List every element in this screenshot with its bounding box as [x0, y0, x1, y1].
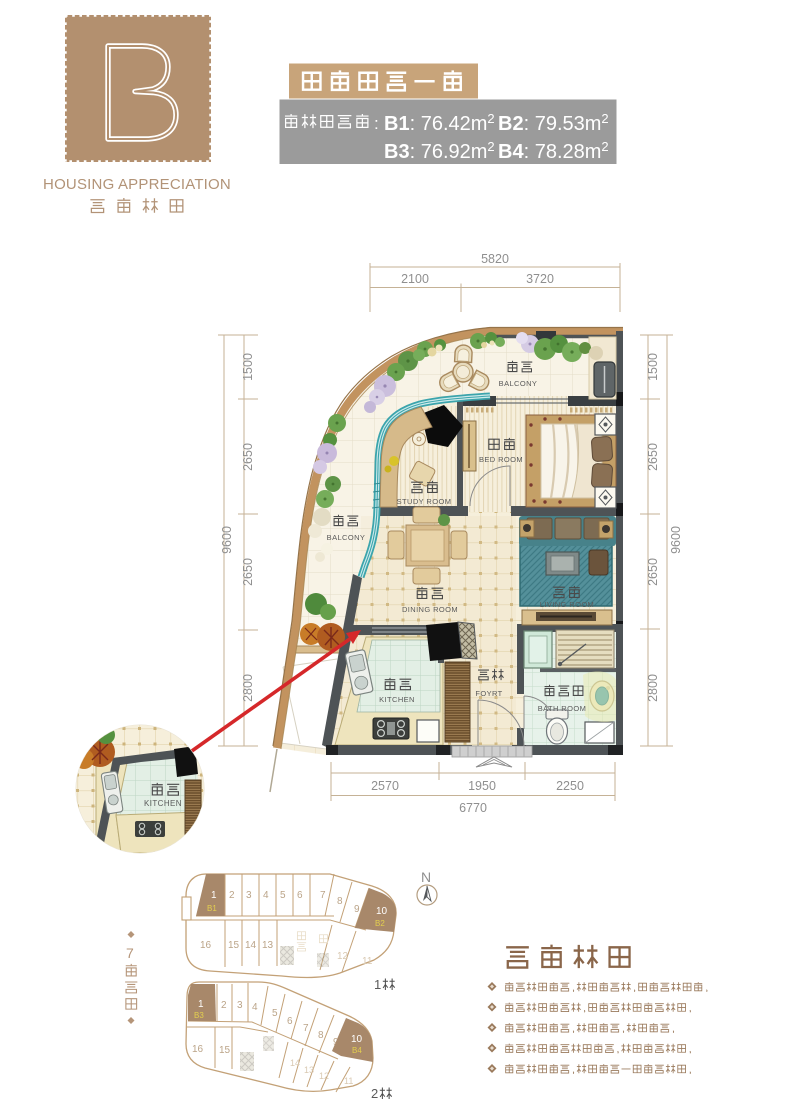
- svg-text:13: 13: [262, 940, 274, 951]
- svg-text:B1: 76.42m2: B1: 76.42m2: [384, 111, 495, 135]
- svg-text:4: 4: [252, 1002, 258, 1013]
- svg-text:2650: 2650: [241, 558, 255, 586]
- svg-text:FOYRT: FOYRT: [475, 689, 502, 698]
- svg-text:12: 12: [319, 1071, 329, 1081]
- svg-text:B3: B3: [194, 1011, 204, 1020]
- svg-text:2650: 2650: [241, 443, 255, 471]
- svg-text:7: 7: [320, 890, 326, 901]
- svg-text:9: 9: [354, 904, 360, 915]
- svg-text:15: 15: [228, 940, 240, 951]
- svg-text:2650: 2650: [646, 443, 660, 471]
- svg-text:2570: 2570: [371, 779, 399, 793]
- svg-text:5820: 5820: [481, 252, 509, 266]
- svg-text:KITCHEN: KITCHEN: [144, 799, 182, 808]
- svg-text:15: 15: [219, 1045, 231, 1056]
- svg-text:8: 8: [318, 1030, 324, 1041]
- svg-text:B2: 79.53m2: B2: 79.53m2: [498, 111, 609, 135]
- svg-text:2: 2: [371, 1086, 378, 1101]
- svg-text:8: 8: [337, 896, 343, 907]
- svg-text:B4: B4: [352, 1046, 362, 1055]
- svg-text:1: 1: [198, 999, 204, 1010]
- svg-text:16: 16: [192, 1044, 204, 1055]
- svg-text:7: 7: [126, 945, 134, 961]
- svg-text:2650: 2650: [646, 558, 660, 586]
- svg-text:2: 2: [229, 890, 235, 901]
- svg-text:10: 10: [376, 906, 388, 917]
- svg-text:N: N: [421, 869, 431, 885]
- svg-text:KITCHEN: KITCHEN: [379, 695, 415, 704]
- svg-text:B3: 76.92m2: B3: 76.92m2: [384, 139, 495, 163]
- svg-text:1500: 1500: [241, 353, 255, 381]
- svg-text:1: 1: [374, 977, 381, 992]
- svg-text:4: 4: [263, 890, 269, 901]
- svg-text:BATH ROOM: BATH ROOM: [538, 704, 586, 713]
- svg-text:11: 11: [344, 1076, 353, 1086]
- svg-text:B2: B2: [375, 919, 385, 928]
- svg-text:DINING ROOM: DINING ROOM: [402, 605, 458, 614]
- svg-text:2100: 2100: [401, 272, 429, 286]
- svg-text:9600: 9600: [669, 526, 683, 554]
- svg-text:16: 16: [200, 940, 212, 951]
- svg-text:3720: 3720: [526, 272, 554, 286]
- svg-text:1: 1: [211, 890, 217, 901]
- svg-text:13: 13: [304, 1065, 314, 1075]
- svg-text:14: 14: [245, 940, 257, 951]
- svg-text:11: 11: [362, 956, 373, 967]
- svg-text:2250: 2250: [556, 779, 584, 793]
- svg-text:BALCONY: BALCONY: [499, 379, 538, 388]
- svg-text:B1: B1: [207, 904, 217, 913]
- svg-text:6: 6: [287, 1016, 293, 1027]
- svg-text::: :: [374, 114, 379, 133]
- svg-text:2800: 2800: [646, 674, 660, 702]
- svg-text:6770: 6770: [459, 801, 487, 815]
- svg-text:7: 7: [303, 1023, 309, 1034]
- svg-text:5: 5: [280, 890, 286, 901]
- svg-text:BALCONY: BALCONY: [327, 533, 366, 542]
- svg-text:5: 5: [272, 1008, 278, 1019]
- svg-text:1950: 1950: [468, 779, 496, 793]
- svg-text:2800: 2800: [241, 674, 255, 702]
- svg-text:10: 10: [351, 1034, 363, 1045]
- svg-text:HOUSING APPRECIATION: HOUSING APPRECIATION: [43, 176, 231, 193]
- svg-text:BED ROOM: BED ROOM: [479, 455, 523, 464]
- svg-text:2: 2: [221, 1000, 227, 1011]
- svg-text:12: 12: [337, 951, 349, 962]
- svg-text:3: 3: [237, 1000, 243, 1011]
- svg-text:B4: 78.28m2: B4: 78.28m2: [498, 139, 609, 163]
- svg-text:9600: 9600: [220, 526, 234, 554]
- svg-text:6: 6: [297, 890, 303, 901]
- svg-text:14: 14: [290, 1058, 300, 1068]
- svg-text:3: 3: [246, 890, 252, 901]
- svg-text:1500: 1500: [646, 353, 660, 381]
- svg-text:STUDY ROOM: STUDY ROOM: [397, 497, 452, 506]
- svg-text:LIVING ROOM: LIVING ROOM: [540, 600, 594, 609]
